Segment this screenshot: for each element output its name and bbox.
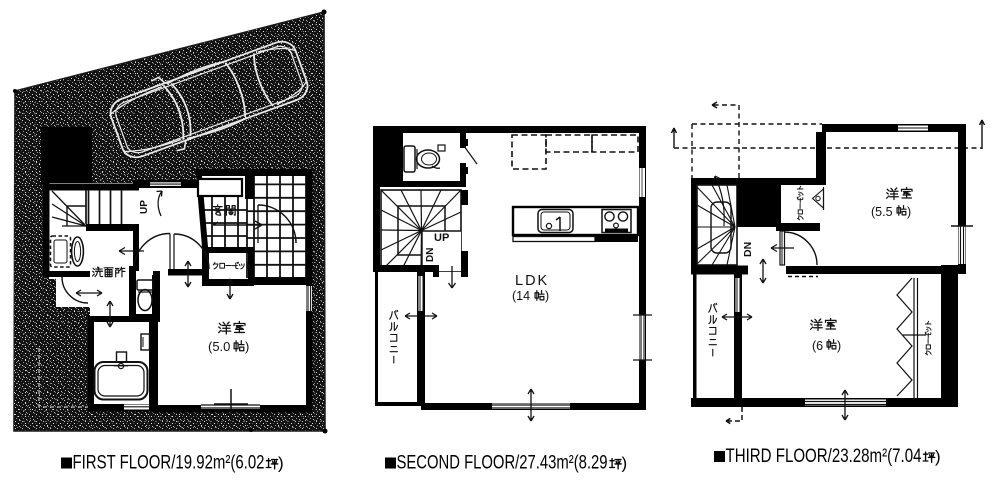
svg-text:): ) xyxy=(907,205,911,219)
svg-text:): ) xyxy=(935,447,941,466)
svg-text:(5.0: (5.0 xyxy=(208,339,230,354)
svg-text:DN: DN xyxy=(425,248,436,262)
svg-text:(14: (14 xyxy=(512,289,530,303)
svg-text:): ) xyxy=(245,339,249,354)
svg-text:): ) xyxy=(278,454,284,473)
svg-text:): ) xyxy=(622,454,628,473)
svg-text:THIRD FLOOR/23.28m²(7.04: THIRD FLOOR/23.28m²(7.04 xyxy=(726,446,922,467)
svg-text:): ) xyxy=(837,339,841,353)
svg-text:(6: (6 xyxy=(812,339,823,353)
svg-text:UP: UP xyxy=(434,232,449,244)
svg-text:DN: DN xyxy=(742,242,754,257)
svg-text:): ) xyxy=(545,289,549,303)
svg-text:LDK: LDK xyxy=(515,273,549,289)
svg-text:(5.5: (5.5 xyxy=(871,205,893,219)
svg-text:UP: UP xyxy=(139,200,150,214)
svg-text:SECOND FLOOR/27.43m²(8.29: SECOND FLOOR/27.43m²(8.29 xyxy=(397,453,608,474)
svg-text:FIRST FLOOR/19.92m²(6.02: FIRST FLOOR/19.92m²(6.02 xyxy=(73,453,265,474)
